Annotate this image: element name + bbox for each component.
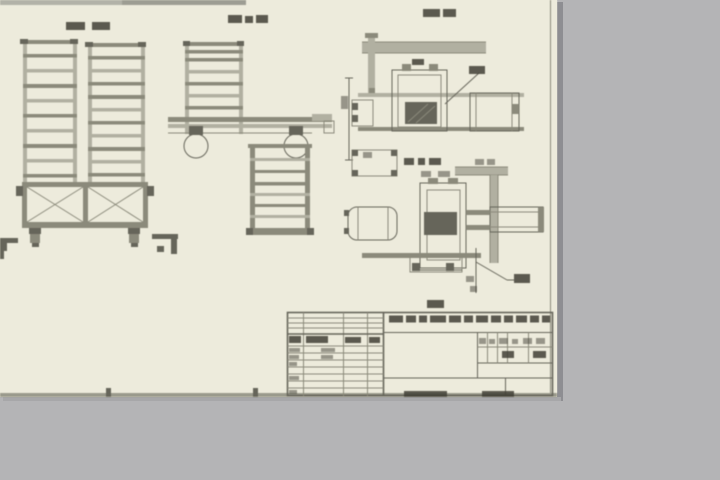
top-band <box>0 0 246 5</box>
sheet-shadow-bottom <box>3 397 561 401</box>
designation-smudge <box>389 316 550 323</box>
side-view-label-smudge <box>228 15 268 23</box>
drawing-linework <box>0 0 557 397</box>
sheet-shadow-right <box>557 2 563 401</box>
drawing-sheet <box>0 0 557 397</box>
detail-a-label-smudge <box>423 9 456 17</box>
drawing-preview <box>0 0 720 480</box>
viewer-canvas: { "window": { "background": "#b4b4b6" },… <box>0 0 720 480</box>
